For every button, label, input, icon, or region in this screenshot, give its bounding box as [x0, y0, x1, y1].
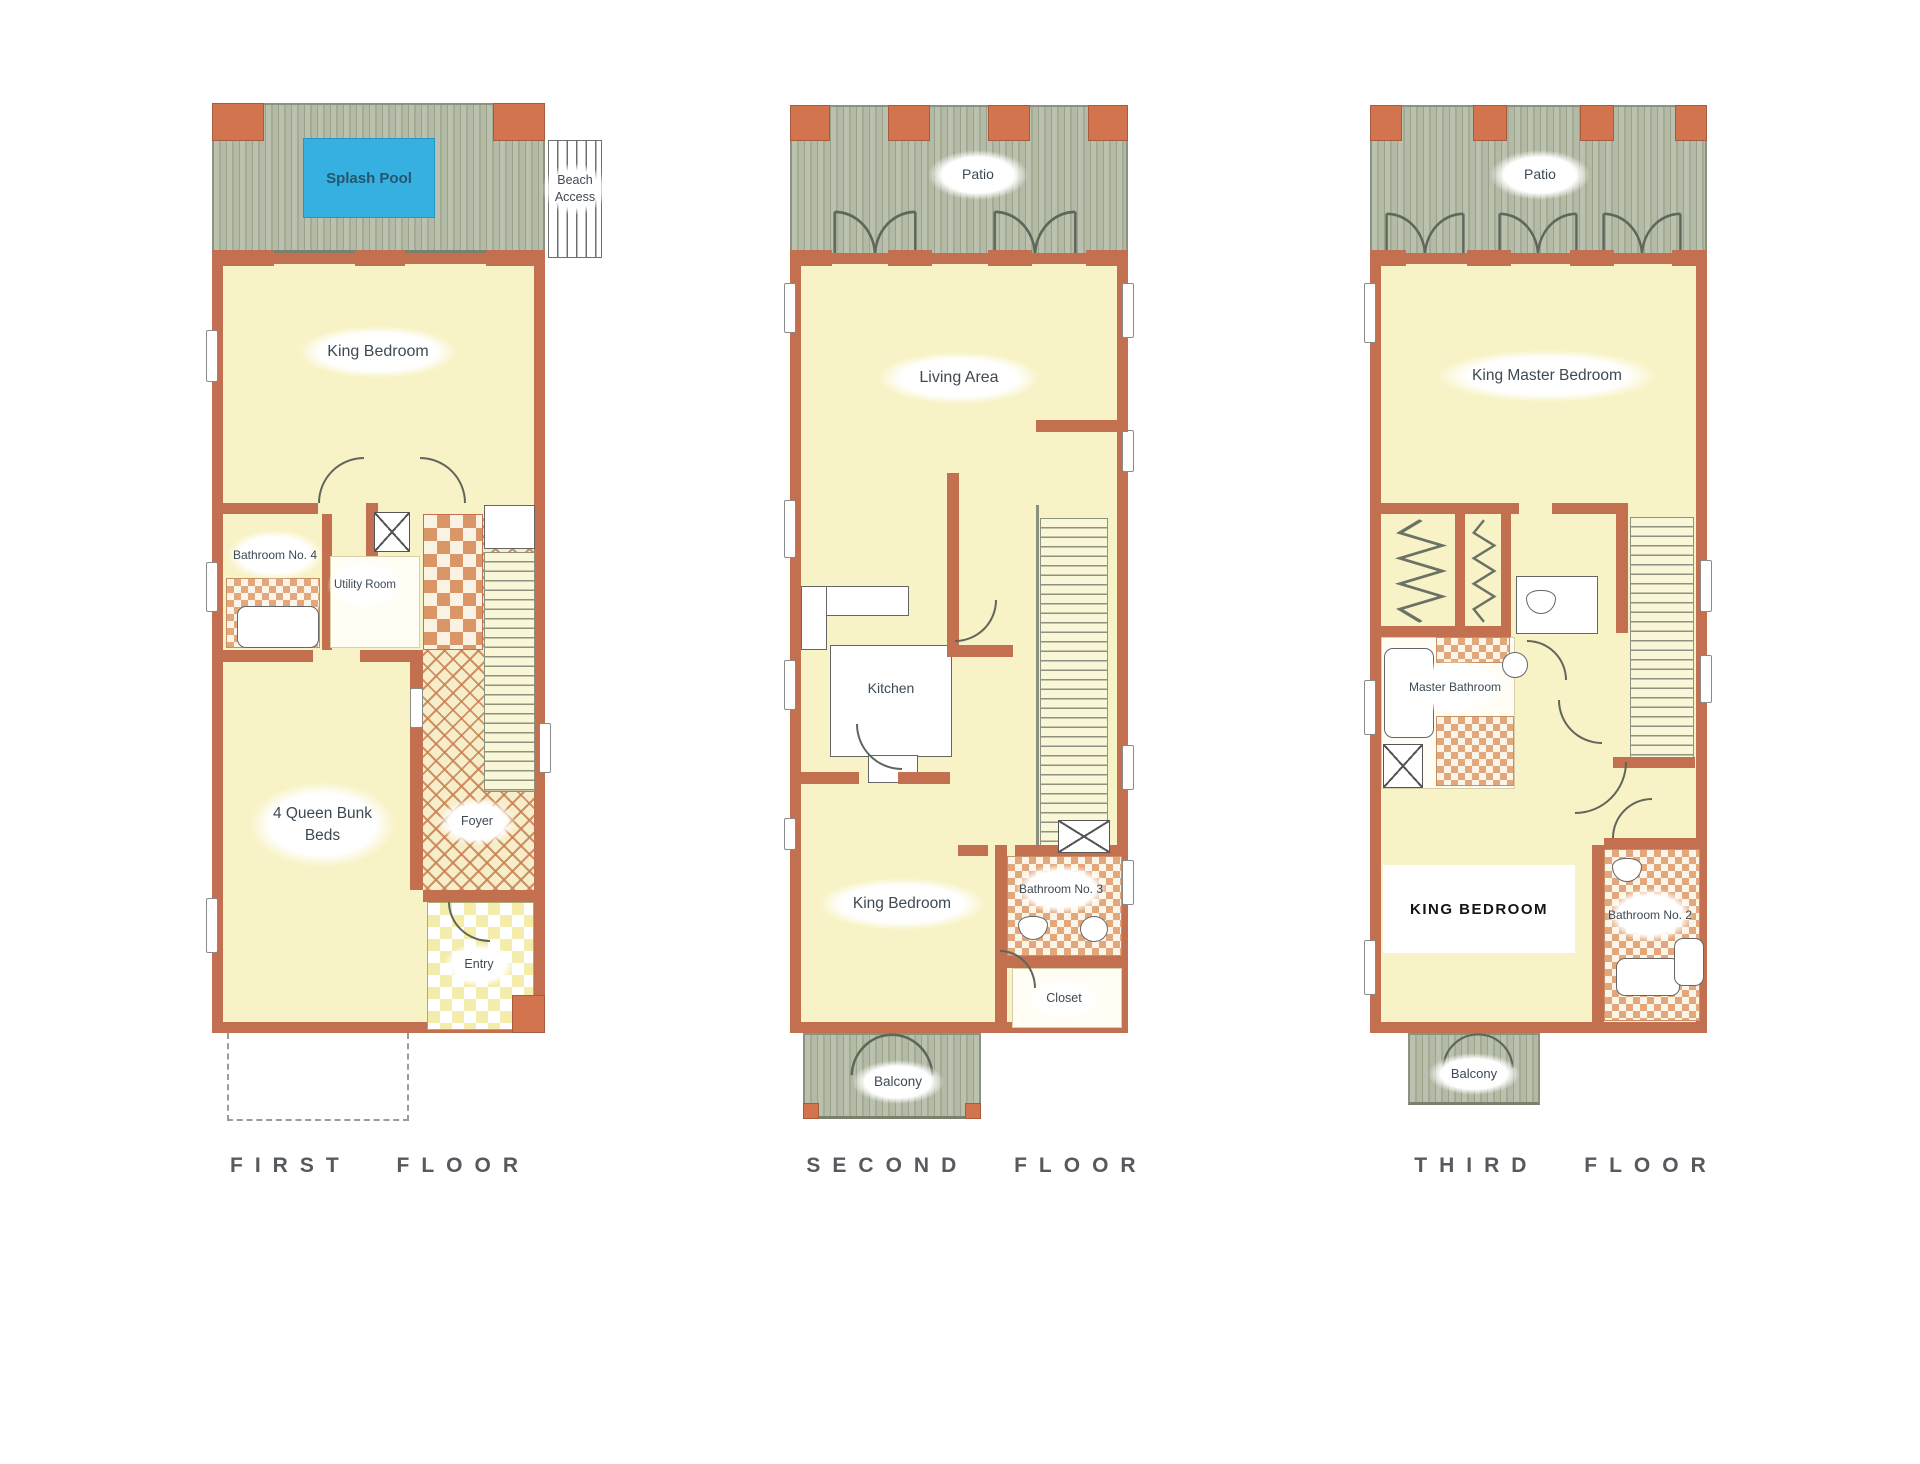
interior-wall — [1616, 503, 1628, 633]
closet-rod — [1470, 518, 1498, 624]
deck-post — [1473, 105, 1507, 141]
deck-post — [1580, 105, 1614, 141]
interior-wall — [1455, 514, 1465, 626]
interior-wall — [1552, 503, 1616, 514]
third-floor-plan: Patio King Master — [0, 0, 1920, 1464]
floorplan-canvas: Splash Pool Beach Access King Bedroom Ba… — [0, 0, 1920, 1464]
deck-post — [1370, 105, 1402, 141]
wall-stub — [1467, 250, 1511, 266]
window — [1364, 680, 1376, 735]
interior-wall — [1501, 514, 1511, 626]
master-bedroom-label: King Master Bedroom — [1437, 350, 1657, 402]
closet-rod-icon — [1392, 518, 1450, 624]
king-bedroom-label: KING BEDROOM — [1410, 901, 1548, 918]
interior-wall — [1592, 845, 1604, 1033]
balcony-label: Balcony — [1428, 1053, 1520, 1095]
window — [1364, 940, 1376, 995]
third-floor-title: THIRD FLOOR — [1390, 1150, 1742, 1182]
closet-rod-icon — [1470, 518, 1498, 624]
interior-wall — [1381, 503, 1519, 514]
stairs — [1630, 517, 1694, 762]
patio-label: Patio — [1490, 150, 1590, 200]
bathtub — [1616, 958, 1680, 996]
shower-icon — [1383, 744, 1423, 788]
french-door-arcs-icon — [1602, 212, 1682, 256]
window — [1364, 283, 1376, 343]
interior-wall — [1604, 838, 1707, 849]
deck-post — [1675, 105, 1707, 141]
wall-stub — [1370, 250, 1406, 266]
interior-wall — [1381, 626, 1511, 637]
window — [1700, 560, 1712, 612]
bathroom2-label: Bathroom No. 2 — [1606, 888, 1694, 942]
closet-rod — [1392, 518, 1450, 624]
french-doors — [1602, 212, 1682, 256]
master-bathroom-label: Master Bathroom — [1404, 660, 1506, 714]
window — [1700, 655, 1712, 703]
wall-stub — [1672, 250, 1707, 266]
vanity-tile — [1436, 716, 1514, 786]
wall-stub — [1570, 250, 1614, 266]
king-bedroom-label-box: KING BEDROOM — [1383, 865, 1575, 953]
shower-stall — [1674, 938, 1704, 986]
